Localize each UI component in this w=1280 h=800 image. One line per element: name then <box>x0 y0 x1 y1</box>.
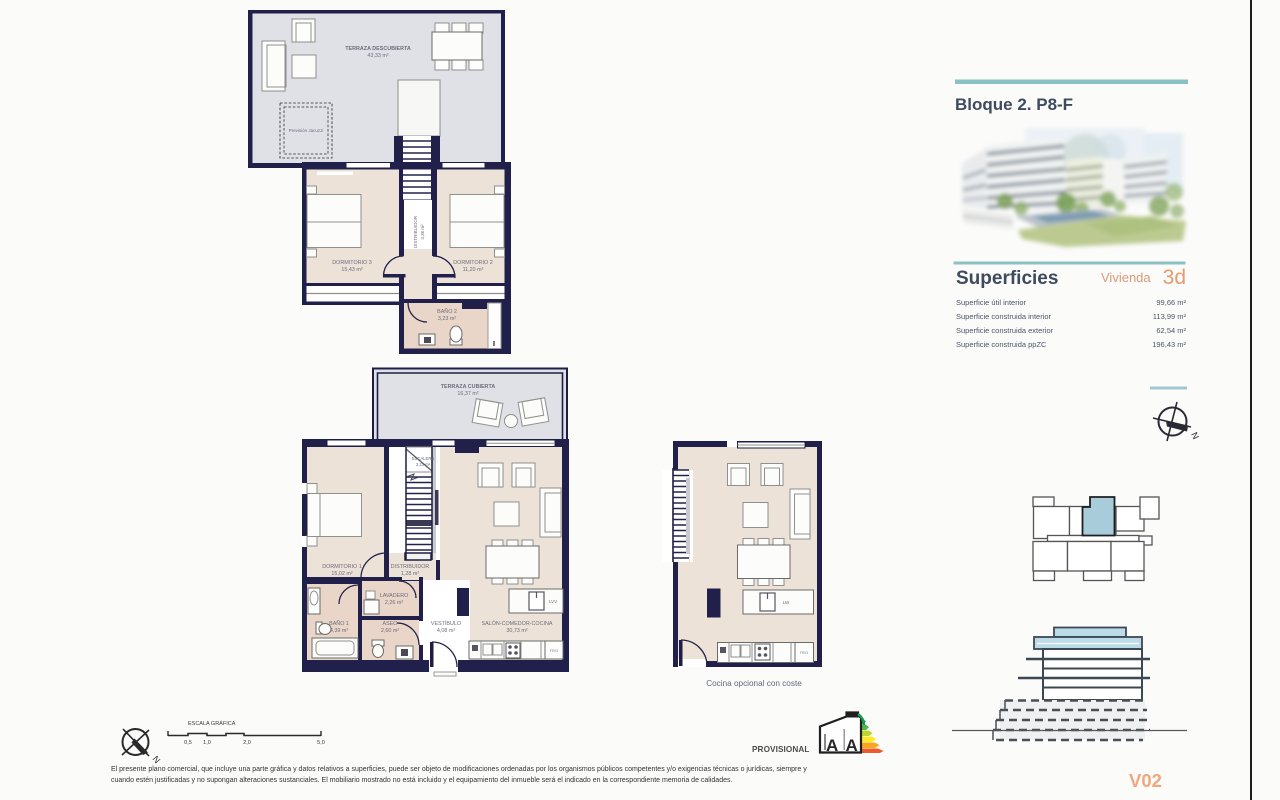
svg-text:LW: LW <box>783 600 790 605</box>
svg-text:196,43 m²: 196,43 m² <box>1152 340 1186 349</box>
svg-text:3,21 m²: 3,21 m² <box>416 462 431 467</box>
svg-text:Superficie construida interior: Superficie construida interior <box>956 312 1052 321</box>
svg-text:FRIG: FRIG <box>800 651 809 655</box>
svg-text:A: A <box>846 736 858 755</box>
svg-text:3d: 3d <box>1163 266 1186 289</box>
svg-text:62,54 m²: 62,54 m² <box>1156 326 1186 335</box>
svg-text:SALÓN-COMEDOR-COCINA: SALÓN-COMEDOR-COCINA <box>482 620 553 627</box>
svg-text:Superficie útil interior: Superficie útil interior <box>956 298 1027 307</box>
svg-text:ESCALERA: ESCALERA <box>412 456 435 461</box>
svg-text:15,02 m²: 15,02 m² <box>331 571 352 577</box>
svg-text:DORMITORIO 2: DORMITORIO 2 <box>453 260 492 266</box>
svg-text:Vivienda: Vivienda <box>1101 270 1151 285</box>
svg-text:Superficies: Superficies <box>956 268 1058 289</box>
svg-text:V02: V02 <box>1129 770 1162 791</box>
svg-text:Previsión Jacuzzi: Previsión Jacuzzi <box>289 128 324 133</box>
svg-text:DORMITORIO 1: DORMITORIO 1 <box>322 564 361 570</box>
svg-text:15,43 m²: 15,43 m² <box>341 267 362 273</box>
svg-text:ESCALA GRÁFICA: ESCALA GRÁFICA <box>188 720 236 727</box>
svg-text:BAÑO 1: BAÑO 1 <box>329 620 349 627</box>
svg-text:43,33 m²: 43,33 m² <box>367 53 388 59</box>
svg-text:2,26 m²: 2,26 m² <box>385 600 403 606</box>
svg-text:113,99 m²: 113,99 m² <box>1153 312 1187 321</box>
svg-text:4,39 m²: 4,39 m² <box>330 628 348 634</box>
svg-text:30,73 m²: 30,73 m² <box>506 628 527 634</box>
svg-text:DORMITORIO 3: DORMITORIO 3 <box>332 260 371 266</box>
svg-text:El presente plano comercial, q: El presente plano comercial, que incluye… <box>111 766 807 773</box>
svg-text:1,28 m²: 1,28 m² <box>401 571 419 577</box>
svg-text:Cocina opcional con coste: Cocina opcional con coste <box>706 679 802 688</box>
svg-text:A: A <box>826 736 838 755</box>
svg-text:DISTRIBUIDOR: DISTRIBUIDOR <box>391 564 430 570</box>
svg-text:Superficie construida ppZC: Superficie construida ppZC <box>956 340 1047 349</box>
svg-text:5,0: 5,0 <box>317 740 325 746</box>
svg-text:LVV: LVV <box>549 599 557 604</box>
svg-text:2,0: 2,0 <box>243 740 251 746</box>
svg-text:99,66 m²: 99,66 m² <box>1156 298 1186 307</box>
svg-text:Superficie construida exterior: Superficie construida exterior <box>956 326 1054 335</box>
svg-text:4,08 m²: 4,08 m² <box>437 628 455 634</box>
svg-text:1,0: 1,0 <box>203 740 211 746</box>
svg-text:LAVADERO: LAVADERO <box>380 593 409 599</box>
svg-text:0,5: 0,5 <box>184 740 192 746</box>
svg-text:3,36 m²: 3,36 m² <box>420 224 425 240</box>
svg-text:BAÑO 2: BAÑO 2 <box>437 308 457 315</box>
svg-text:DISTRIBUIDOR: DISTRIBUIDOR <box>413 215 418 248</box>
svg-text:TERRAZA CUBIERTA: TERRAZA CUBIERTA <box>441 384 496 390</box>
svg-text:ASEO: ASEO <box>383 621 398 627</box>
svg-text:Bloque 2. P8-F: Bloque 2. P8-F <box>955 95 1073 114</box>
svg-text:11,20 m²: 11,20 m² <box>463 267 484 273</box>
svg-text:3,23 m²: 3,23 m² <box>438 316 456 322</box>
svg-text:FRIG: FRIG <box>550 649 559 653</box>
svg-text:16,37 m²: 16,37 m² <box>457 391 478 397</box>
svg-text:PROVISIONAL: PROVISIONAL <box>752 745 810 754</box>
svg-text:cuando estén justificadas y no: cuando estén justificadas y no supongan … <box>111 777 732 784</box>
svg-text:TERRAZA DESCUBIERTA: TERRAZA DESCUBIERTA <box>345 46 411 52</box>
svg-text:2,60 m²: 2,60 m² <box>381 628 399 634</box>
svg-text:VESTÍBULO: VESTÍBULO <box>431 620 461 627</box>
